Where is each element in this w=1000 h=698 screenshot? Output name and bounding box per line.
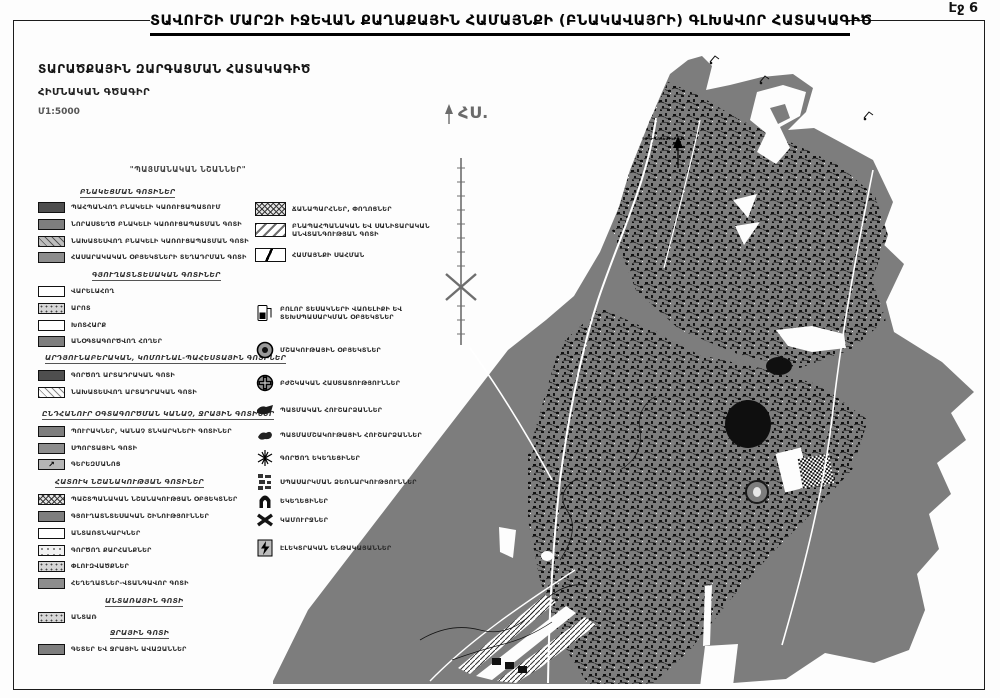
legend-item-label: ԳԵՏԵՐ ԵՎ ՋՐԱՅԻՆ ԱՎԱԶԱՆՆԵՐ	[71, 645, 187, 653]
legend-item-label: ԱՆՏԱՌ	[71, 613, 97, 621]
legend-item: ՆՈՐԱՍՏԵՂԾ ԲՆԱԿԵԼԻ ԿԱՌՈՒՑԱՊԱՏՄԱՆ ԳՈՏԻ	[38, 219, 242, 230]
zone-swatch-icon	[38, 561, 65, 572]
legend-item: ՊԱՏՄԱՄՇԱԿՈՒԹԱՅԻՆ ՀՈՒՇԱՐՁԱՆՆԵՐ	[256, 426, 448, 444]
legend-item: ՍՊՈՐՏԱՅԻՆ ԳՈՏԻ	[38, 443, 137, 454]
legend-item: ՊՈՒՐԱԿՆԵՐ, ԿԱՆԱՉ ՏՆԿԱՐԿՆԵՐԻ ԳՈՏԻՆԵՐ	[38, 426, 232, 437]
legend-item: ԳՈՐԾՈՂ ԵԿԵՂԵՑԻՆԵՐ	[256, 449, 448, 467]
legend-title: "ՊԱՅՄԱՆԱԿԱՆ ՆՇԱՆՆԵՐ"	[38, 165, 338, 174]
legend-item: ԵԿԵՂԵՑԻՆԵՐ	[256, 492, 448, 510]
drawing-subtitle: ՀԻՄՆԱԿԱՆ ԳԾԱԳԻՐ	[38, 87, 150, 98]
zone-swatch-icon	[38, 545, 65, 556]
church-star-icon	[256, 449, 274, 467]
zone-swatch-icon	[38, 443, 65, 454]
fuel-station-icon	[256, 304, 274, 322]
zone-swatch-icon	[38, 219, 65, 230]
legend-item: ԲՆԱՊԱՀՊԱՆԱԿԱՆ ԵՎ ՍԱՆԻՏԱՐԱԿԱՆ ԱՆՎՏԱՆԳՈՒԹՅ…	[255, 222, 460, 238]
zone-swatch-icon	[38, 286, 65, 297]
bridge-x-icon	[256, 511, 274, 529]
power-substation-icon	[256, 539, 274, 557]
cultural-object-icon	[256, 341, 274, 359]
zone-swatch-icon	[38, 387, 65, 398]
legend-item: ԿԱՄՈՒՐՋՆԵՐ	[256, 511, 448, 529]
direction-label: ԴԵՊԻ ՆՈՅԵՄԲԵՐՅԱՆ	[642, 136, 685, 141]
legend-item-label: ԳՈՐԾՈՂ ՔԱՐՀԱՆՔՆԵՐ	[71, 546, 152, 554]
legend-item: ՃԱՆԱՊԱՐՀՆԵՐ, ՓՈՂՈՑՆԵՐ	[255, 202, 460, 216]
legend-section-header: ԲՆԱԿԵՑՄԱՆ ԳՈՏԻՆԵՐ	[80, 188, 175, 198]
zone-swatch-icon	[38, 426, 65, 437]
legend-item: ՀԱՄԱՅՆՔԻ ՍԱՀՄԱՆ	[255, 248, 460, 262]
legend-item: ԱՐՈՏ	[38, 303, 91, 314]
legend-item-label: ՎԱՐԵԼԱՀՈՂ	[71, 287, 114, 295]
legend-item-label: ՊԱՇՏՊԱՆԱԿԱՆ ՆՇԱՆԱԿՈՒԹՅԱՆ ՕԲՅԵԿՏՆԵՐ	[71, 495, 237, 503]
zone-swatch-icon	[38, 370, 65, 381]
legend-item-label: ԳԵՐԵԶՄԱՆՈՑ	[71, 460, 121, 468]
zone-swatch-icon	[38, 612, 65, 623]
legend-item-label: ԲԺՇԿԱԿԱՆ ՀԱՍՏԱՏՈՒԹՅՈՒՆՆԵՐ	[280, 379, 448, 387]
legend-item: ՀԵՂԵՂԱՏՆԵՐ-ՎՏԱՆԳԱՎՈՐ ԳՈՏԻ	[38, 578, 189, 589]
legend-item: ԳՈՐԾՈՂ ԱՐՏԱԴՐԱԿԱՆ ԳՈՏԻ	[38, 370, 175, 381]
legend-item: ԲԺՇԿԱԿԱՆ ՀԱՍՏԱՏՈՒԹՅՈՒՆՆԵՐ	[256, 374, 448, 392]
zone-swatch-icon	[38, 644, 65, 655]
legend-section-header: ԳՅՈՒՂԱՏՆՏԵՍԱԿԱՆ ԳՈՏԻՆԵՐ	[92, 271, 221, 281]
legend-item: ՎԱՐԵԼԱՀՈՂ	[38, 286, 114, 297]
legend-item: ՍՊԱՍԱՐԿՄԱՆ ՁԵՌՆԱՐԿՈՒԹՅՈՒՆՆԵՐ	[256, 473, 448, 491]
legend-item-label: ԵԿԵՂԵՑԻՆԵՐ	[280, 497, 448, 505]
legend-item-label: ԳՈՐԾՈՂ ԵԿԵՂԵՑԻՆԵՐ	[280, 454, 448, 462]
legend-item: ՄՇԱԿՈՒԹԱՅԻՆ ՕԲՅԵԿՏՆԵՐ	[256, 341, 448, 359]
legend-section-header: ԸՆԴՀԱՆՈՒՐ ՕԳՏԱԳՈՐԾՄԱՆ ԿԱՆԱՉ, ՋՐԱՅԻՆ ԳՈՏԻ…	[42, 410, 274, 420]
legend-item: ՊԱՇՏՊԱՆԱԿԱՆ ՆՇԱՆԱԿՈՒԹՅԱՆ ՕԲՅԵԿՏՆԵՐ	[38, 494, 237, 505]
map-scale: Մ1:5000	[38, 107, 80, 117]
zone-swatch-icon	[38, 528, 65, 539]
legend-item: ՀԱՍԱՐԱԿԱԿԱՆ ՕԲՅԵԿՏՆԵՐԻ ՏԵՂԱԴՐՄԱՆ ԳՈՏԻ	[38, 252, 247, 263]
legend-item-label: ԽՈՏՀԱՐՔ	[71, 321, 106, 329]
zone-swatch-icon	[38, 336, 65, 347]
zone-swatch-icon	[38, 511, 65, 522]
north-label: ՀՍ.	[458, 103, 489, 122]
plan-subtitle: ՏԱՐԱԾՔԱՅԻՆ ԶԱՐԳԱՑՄԱՆ ՀԱՏԱԿԱԳԻԾ	[38, 62, 311, 76]
legend-section-header: ԱՆՏԱՌԱՅԻՆ ԳՈՏԻ	[105, 597, 183, 607]
legend-item-label: ՊԱՀՊԱՆՎՈՂ ԲՆԱԿԵԼԻ ԿԱՌՈՒՑԱՊԱՏՈՒՄ	[71, 203, 221, 211]
legend-item: ՓԼՈՒԶՎԱԾՔՆԵՐ	[38, 561, 129, 572]
legend-item-label: ՍՊՈՐՏԱՅԻՆ ԳՈՏԻ	[71, 444, 137, 452]
roads-swatch-icon	[255, 202, 286, 216]
legend-item-label: ԿԱՄՈՒՐՋՆԵՐ	[280, 516, 448, 524]
legend-item: ԳՈՐԾՈՂ ՔԱՐՀԱՆՔՆԵՐ	[38, 545, 152, 556]
document-title: ՏԱՎՈՒՇԻ ՄԱՐԶԻ ԻՋԵՎԱՆ ՔԱՂԱՔԱՅԻՆ ՀԱՄԱՅՆՔԻ …	[150, 13, 850, 36]
legend-item-label: ՍՊԱՍԱՐԿՄԱՆ ՁԵՌՆԱՐԿՈՒԹՅՈՒՆՆԵՐ	[280, 478, 448, 486]
legend-item-label: ԱՆՕԳՏԱԳՈՐԾՎՈՂ ՀՈՂԵՐ	[71, 337, 162, 345]
legend-item: ԳԵՏԵՐ ԵՎ ՋՐԱՅԻՆ ԱՎԱԶԱՆՆԵՐ	[38, 644, 187, 655]
legend-item-label: ԱՆՏԱՌՏՆԿԱՐԿՆԵՐ	[71, 529, 140, 537]
legend-item: ՆԱԽԱՏԵՍՎՈՂ ԲՆԱԿԵԼԻ ԿԱՌՈՒՑԱՊԱՏՄԱՆ ԳՈՏԻ	[38, 236, 249, 247]
zone-swatch-icon	[38, 303, 65, 314]
legend-item-label: ՃԱՆԱՊԱՐՀՆԵՐ, ՓՈՂՈՑՆԵՐ	[292, 205, 460, 213]
heritage-monument-icon	[256, 426, 274, 444]
legend-section-header: ՋՐԱՅԻՆ ԳՈՏԻ	[110, 629, 169, 639]
zone-swatch-icon	[38, 494, 65, 505]
legend-section-header: ԱՐԴՅՈՒՆԱԲԵՐԱԿԱՆ, ԿՈՄՈՒՆԱԼ-ՊԱՀԵՍՏԱՅԻՆ ԳՈՏ…	[45, 354, 286, 364]
service-buildings-icon	[256, 473, 274, 491]
cemetery-swatch-icon: ↗	[38, 459, 65, 470]
page-number: Էջ 6	[949, 1, 979, 16]
legend-item-label: ՊԱՏՄԱՄՇԱԿՈՒԹԱՅԻՆ ՀՈՒՇԱՐՁԱՆՆԵՐ	[280, 431, 448, 439]
legend-item-label: ԳՈՐԾՈՂ ԱՐՏԱԴՐԱԿԱՆ ԳՈՏԻ	[71, 371, 175, 379]
medical-cross-icon	[256, 374, 274, 392]
legend-item-label: ՄՇԱԿՈՒԹԱՅԻՆ ՕԲՅԵԿՏՆԵՐ	[280, 346, 448, 354]
zone-swatch-icon	[38, 320, 65, 331]
legend-item: ԲՈԼՈՐ ՏԵՍԱԿՆԵՐԻ ՎԱՌԵԼԻՔԻ ԵՎ ՏԵԽՍՊԱՍԱՐԿՄԱ…	[256, 304, 448, 322]
sanitary-zone-swatch-icon	[255, 223, 286, 237]
legend-item-label: ՆԱԽԱՏԵՍՎՈՂ ԱՐՏԱԴՐԱԿԱՆ ԳՈՏԻ	[71, 388, 197, 396]
legend-item-label: ՓԼՈՒԶՎԱԾՔՆԵՐ	[71, 562, 129, 570]
legend-item-label: ՆԱԽԱՏԵՍՎՈՂ ԲՆԱԿԵԼԻ ԿԱՌՈՒՑԱՊԱՏՄԱՆ ԳՈՏԻ	[71, 237, 249, 245]
legend-item: ՆԱԽԱՏԵՍՎՈՂ ԱՐՏԱԴՐԱԿԱՆ ԳՈՏԻ	[38, 387, 197, 398]
zone-swatch-icon	[38, 252, 65, 263]
legend-item-label: ԲՆԱՊԱՀՊԱՆԱԿԱՆ ԵՎ ՍԱՆԻՏԱՐԱԿԱՆ ԱՆՎՏԱՆԳՈՒԹՅ…	[292, 222, 460, 238]
legend-item-label: ԳՅՈՒՂԱՏՆՏԵՍԱԿԱՆ ՇԻՆՈՒԹՅՈՒՆՆԵՐ	[71, 512, 209, 520]
zone-swatch-icon	[38, 236, 65, 247]
legend-item-label: ԷԼԵԿՏՐԱԿԱՆ ԵՆԹԱԿԱՅԱՆՆԵՐ	[280, 544, 448, 552]
legend-item: ԽՈՏՀԱՐՔ	[38, 320, 106, 331]
zone-swatch-icon	[38, 578, 65, 589]
legend-item-label: ՊԱՏՄԱԿԱՆ ՀՈՒՇԱՐՁԱՆՆԵՐ	[280, 406, 448, 414]
legend-item: ԱՆՏԱՌՏՆԿԱՐԿՆԵՐ	[38, 528, 140, 539]
legend-item-label: ՊՈՒՐԱԿՆԵՐ, ԿԱՆԱՉ ՏՆԿԱՐԿՆԵՐԻ ԳՈՏԻՆԵՐ	[71, 427, 232, 435]
legend-item-label: ՀԱՄԱՅՆՔԻ ՍԱՀՄԱՆ	[292, 251, 460, 259]
legend-item-label: ԱՐՈՏ	[71, 304, 91, 312]
legend-item: ↗ԳԵՐԵԶՄԱՆՈՑ	[38, 459, 121, 470]
legend-item: ՊԱՏՄԱԿԱՆ ՀՈՒՇԱՐՁԱՆՆԵՐ	[256, 401, 448, 419]
legend-item: ԱՆՕԳՏԱԳՈՐԾՎՈՂ ՀՈՂԵՐ	[38, 336, 162, 347]
church-arch-icon	[256, 492, 274, 510]
boundary-swatch-icon	[255, 248, 286, 262]
legend-item: ԳՅՈՒՂԱՏՆՏԵՍԱԿԱՆ ՇԻՆՈՒԹՅՈՒՆՆԵՐ	[38, 511, 209, 522]
legend-item-label: ՀԱՍԱՐԱԿԱԿԱՆ ՕԲՅԵԿՏՆԵՐԻ ՏԵՂԱԴՐՄԱՆ ԳՈՏԻ	[71, 253, 247, 261]
legend-item-label: ՆՈՐԱՍՏԵՂԾ ԲՆԱԿԵԼԻ ԿԱՌՈՒՑԱՊԱՏՄԱՆ ԳՈՏԻ	[71, 220, 242, 228]
legend-item: ԱՆՏԱՌ	[38, 612, 97, 623]
legend-item-label: ԲՈԼՈՐ ՏԵՍԱԿՆԵՐԻ ՎԱՌԵԼԻՔԻ ԵՎ ՏԵԽՍՊԱՍԱՐԿՄԱ…	[280, 305, 448, 321]
legend-item: ՊԱՀՊԱՆՎՈՂ ԲՆԱԿԵԼԻ ԿԱՌՈՒՑԱՊԱՏՈՒՄ	[38, 202, 221, 213]
legend-section-header: ՀԱՏՈՒԿ ՆՇԱՆԱԿՈՒԹՅԱՆ ԳՈՏԻՆԵՐ	[55, 478, 204, 488]
historic-monument-icon	[256, 401, 274, 419]
zone-swatch-icon	[38, 202, 65, 213]
legend-item: ԷԼԵԿՏՐԱԿԱՆ ԵՆԹԱԿԱՅԱՆՆԵՐ	[256, 539, 448, 557]
legend-item-label: ՀԵՂԵՂԱՏՆԵՐ-ՎՏԱՆԳԱՎՈՐ ԳՈՏԻ	[71, 579, 189, 587]
scanned-map-page: Էջ 6 ՏԱՎՈՒՇԻ ՄԱՐԶԻ ԻՋԵՎԱՆ ՔԱՂԱՔԱՅԻՆ ՀԱՄԱ…	[0, 0, 1000, 698]
